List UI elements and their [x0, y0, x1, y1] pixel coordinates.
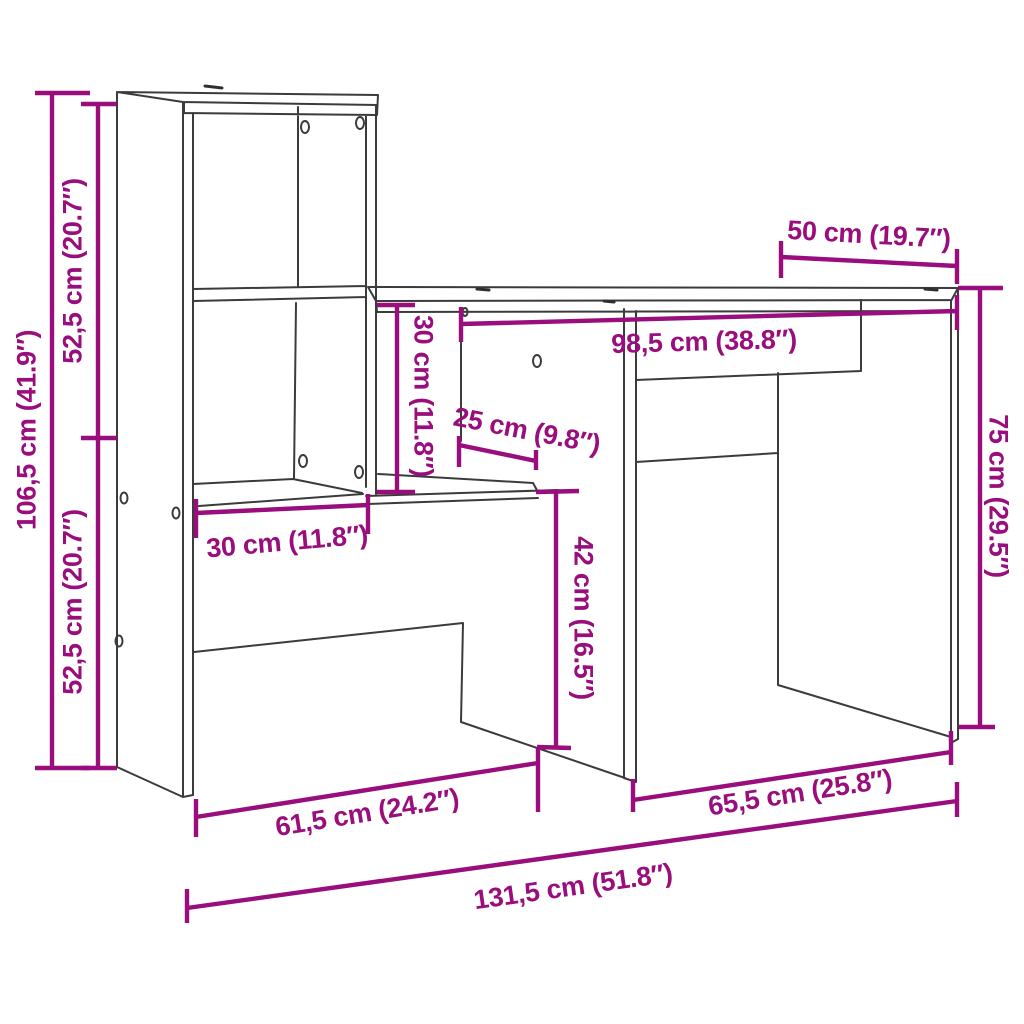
screw-hole [301, 121, 309, 133]
dimension-total-width: 131,5 cm (51.8″) [187, 782, 957, 923]
dimension-line [187, 782, 957, 923]
label-knee-space-height: 42 cm (16.5″) [569, 536, 599, 700]
label-desk-height: 75 cm (29.5″) [984, 414, 1014, 578]
screw-holes [116, 117, 542, 647]
label-lower-section-height: 52,5 cm (20.7″) [57, 509, 87, 695]
screw-hole [121, 493, 128, 504]
dimension-niche-height: 30 cm (11.8″) [377, 305, 439, 492]
label-niche-height: 30 cm (11.8″) [409, 315, 439, 477]
screw-hole [356, 117, 364, 129]
dimension-knee-space-height: 42 cm (16.5″) [536, 491, 599, 748]
diagram-canvas: 106,5 cm (41.9″) 52,5 cm (20.7″) 52,5 cm… [0, 0, 1024, 1024]
surface-marks [205, 86, 937, 302]
label-total-height: 106,5 cm (41.9″) [11, 330, 41, 530]
screw-hole [355, 466, 363, 478]
dimension-upper-section-height: 52,5 cm (20.7″) [57, 104, 117, 438]
screw-hole [173, 508, 180, 519]
label-shelf-width: 30 cm (11.8″) [205, 519, 369, 563]
dimension-desk-depth: 50 cm (19.7″) [781, 215, 957, 284]
dimension-desk-height: 75 cm (29.5″) [958, 288, 1014, 727]
screw-hole [533, 355, 541, 367]
dimension-desktop-inner-width: 98,5 cm (38.8″) [461, 295, 957, 359]
screw-hole [299, 455, 307, 467]
label-desk-depth: 50 cm (19.7″) [786, 215, 951, 254]
bookcase-frame [117, 92, 378, 797]
dimension-diagram: 106,5 cm (41.9″) 52,5 cm (20.7″) 52,5 cm… [0, 0, 1024, 1024]
label-upper-section-height: 52,5 cm (20.7″) [57, 178, 87, 364]
label-desktop-inner-width: 98,5 cm (38.8″) [611, 324, 797, 359]
dimension-shelf-depth: 25 cm (9.8″) [451, 402, 603, 470]
dimension-annotations: 106,5 cm (41.9″) 52,5 cm (20.7″) 52,5 cm… [11, 93, 1013, 923]
dimension-lower-section-height: 52,5 cm (20.7″) [57, 438, 117, 768]
label-shelf-depth: 25 cm (9.8″) [451, 402, 603, 460]
dimension-left-section-floor-width: 61,5 cm (24.2″) [196, 748, 538, 842]
